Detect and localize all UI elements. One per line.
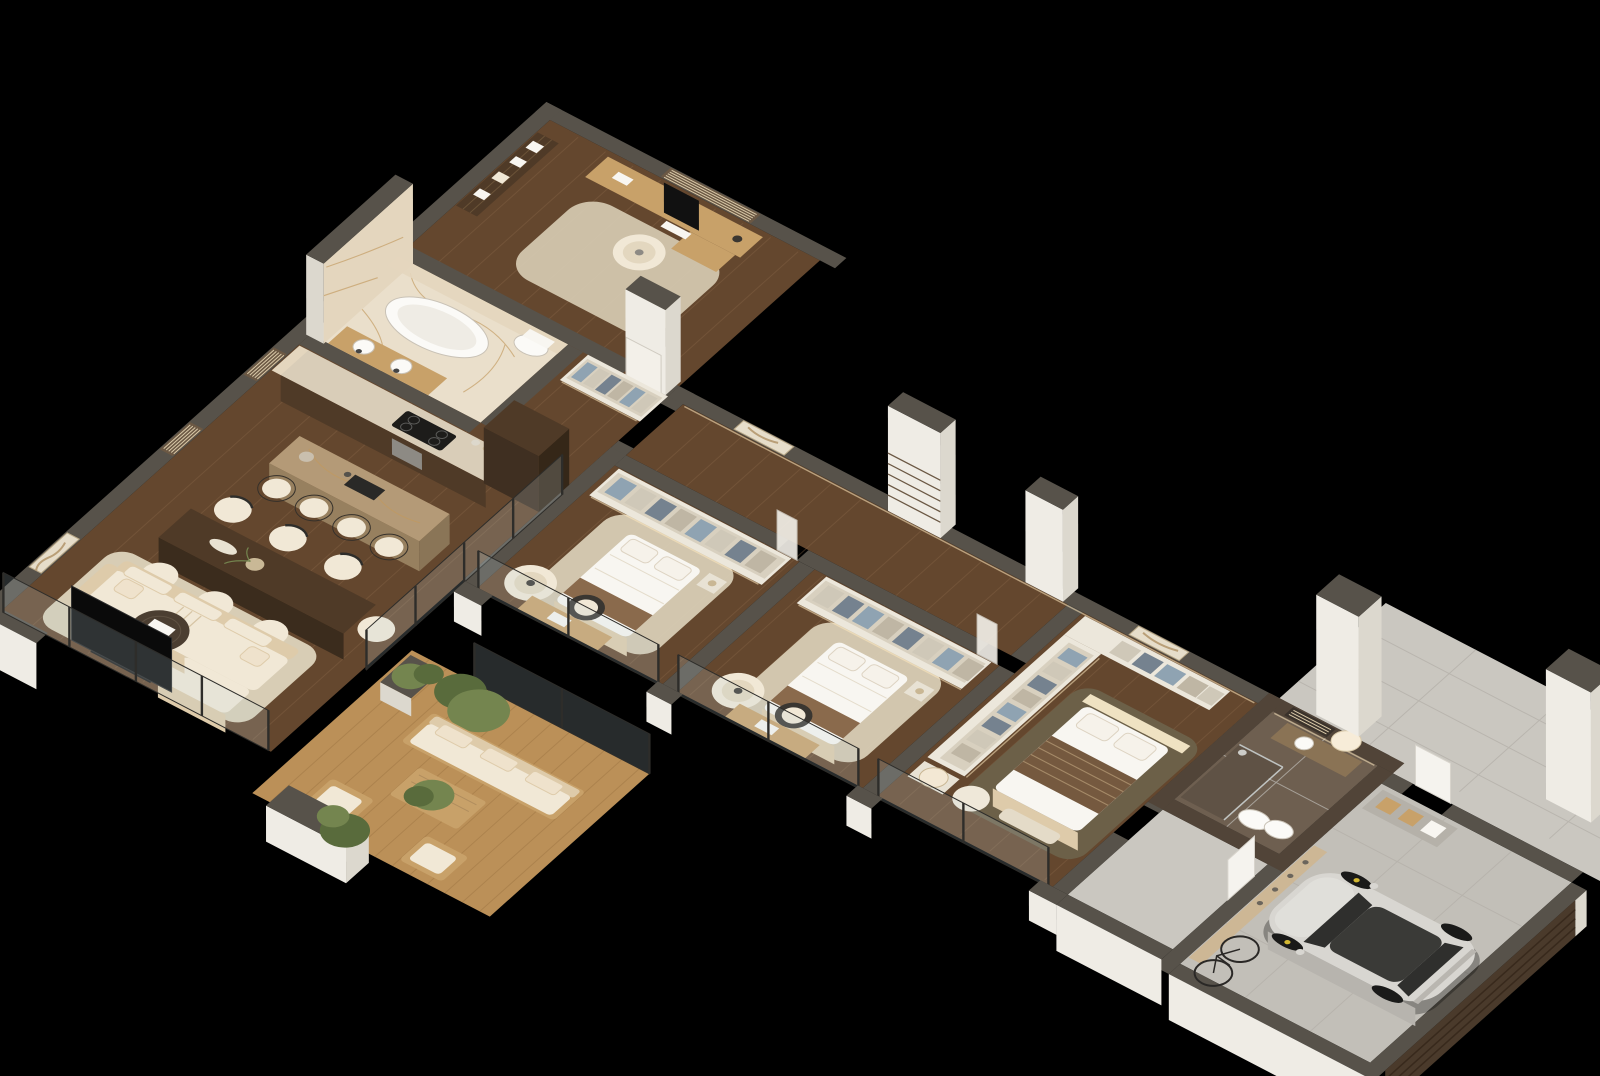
floor-plan-stage bbox=[0, 0, 1600, 1076]
isometric-floor-plan bbox=[0, 0, 1600, 1076]
